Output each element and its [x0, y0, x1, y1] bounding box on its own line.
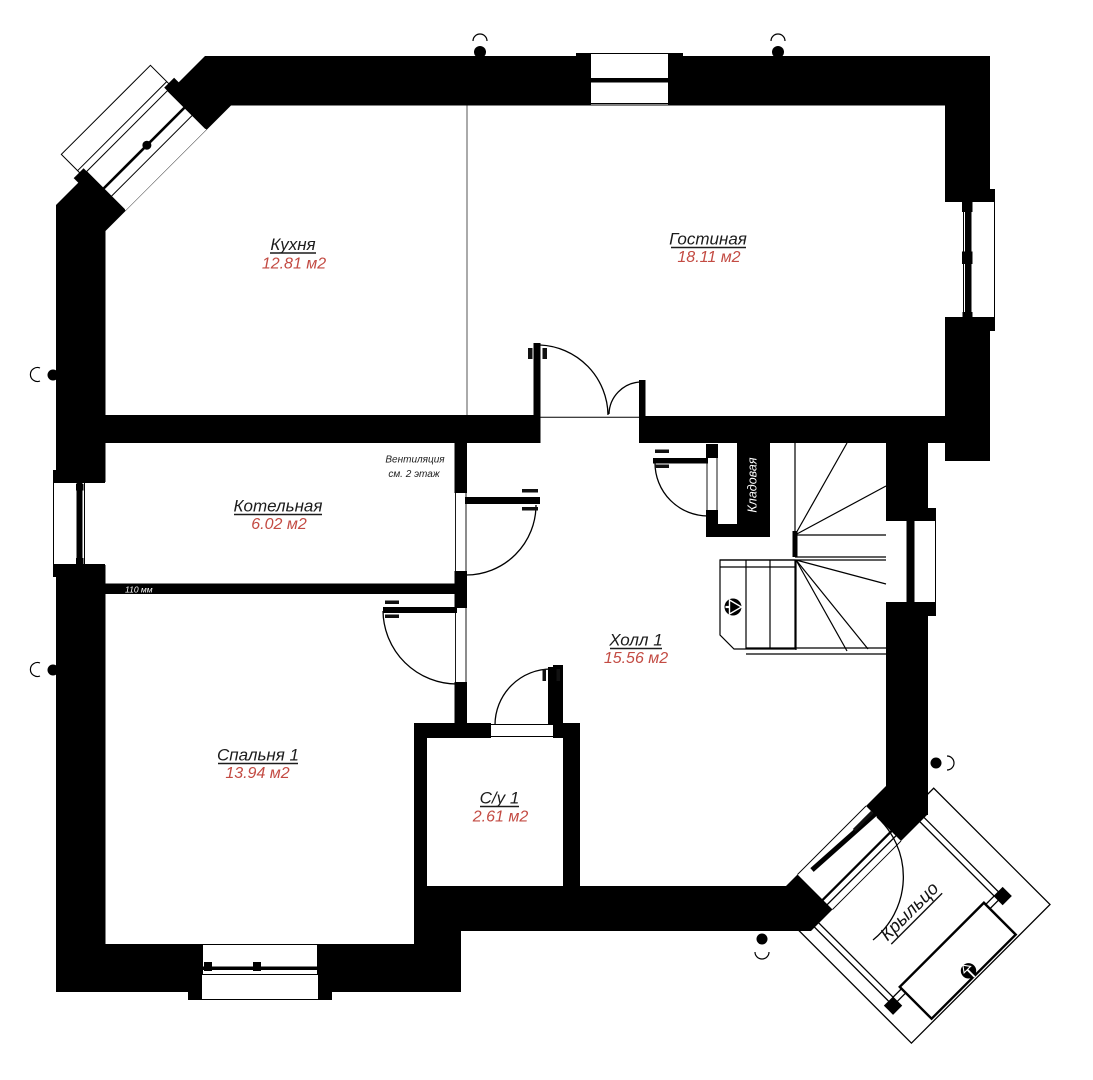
svg-text:Гостиная: Гостиная: [669, 230, 747, 249]
svg-text:6.02 м2: 6.02 м2: [251, 516, 307, 533]
svg-text:15.56 м2: 15.56 м2: [604, 650, 668, 667]
svg-text:С/у 1: С/у 1: [480, 789, 520, 808]
svg-text:Холл 1: Холл 1: [608, 631, 662, 650]
svg-text:Кладовая: Кладовая: [746, 457, 760, 512]
svg-text:Кухня: Кухня: [270, 235, 315, 254]
svg-text:12.81 м2: 12.81 м2: [262, 256, 326, 273]
svg-text:Вентиляция: Вентиляция: [385, 455, 445, 466]
svg-text:Котельная: Котельная: [234, 497, 323, 516]
svg-text:18.11 м2: 18.11 м2: [677, 249, 740, 266]
svg-text:110 мм: 110 мм: [125, 585, 153, 595]
svg-text:2.61 м2: 2.61 м2: [472, 809, 529, 826]
svg-text:13.94 м2: 13.94 м2: [225, 765, 289, 782]
svg-text:Спальня 1: Спальня 1: [217, 746, 299, 765]
svg-text:см. 2 этаж: см. 2 этаж: [388, 469, 440, 480]
